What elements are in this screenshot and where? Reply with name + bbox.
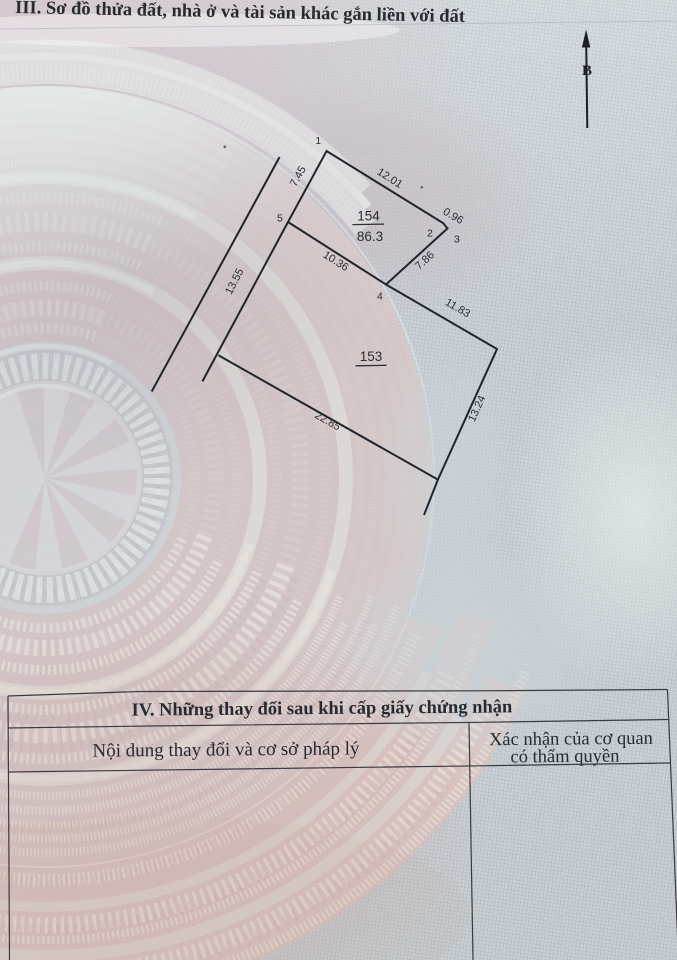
svg-text:4: 4 — [377, 291, 383, 303]
svg-text:Nội dung thay đổi và cơ sở phá: Nội dung thay đổi và cơ sở pháp lý — [92, 738, 360, 761]
svg-text:1: 1 — [316, 136, 322, 147]
svg-text:3: 3 — [454, 234, 460, 246]
svg-text:IV. Những thay đổi sau khi cấp: IV. Những thay đổi sau khi cấp giấy chứn… — [132, 697, 514, 720]
svg-text:2: 2 — [427, 228, 433, 240]
svg-text:B: B — [582, 63, 592, 79]
svg-text:153: 153 — [360, 349, 383, 364]
svg-text:86.3: 86.3 — [357, 229, 383, 244]
svg-text:154: 154 — [357, 209, 380, 224]
svg-text:5: 5 — [277, 213, 283, 225]
